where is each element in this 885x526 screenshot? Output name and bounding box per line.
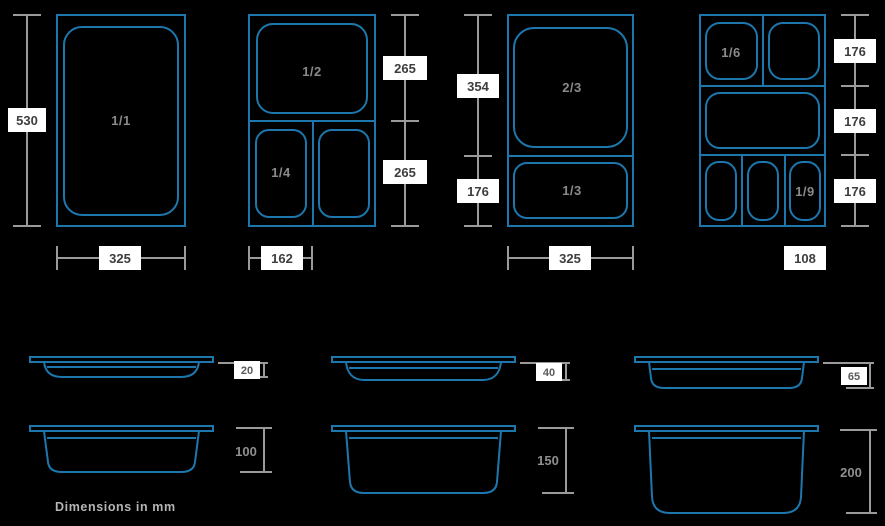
fraction-label-2-3: 2/3: [562, 80, 582, 95]
pan-rim: [635, 357, 818, 362]
pan-body: [346, 362, 501, 380]
pan-1-6-1-9-top-view: 1/6 1/9 176 176 176 108: [700, 15, 876, 270]
dim-label-325b: 325: [559, 251, 581, 266]
pan-body: [649, 362, 804, 388]
pan-profile-depth-100: 100: [30, 426, 272, 472]
dim-label-176-mid: 176: [844, 114, 866, 129]
pan-profile-depth-40: 40: [332, 357, 570, 381]
depth-label-150: 150: [537, 453, 559, 468]
dim-label-530: 530: [16, 113, 38, 128]
pan-profile-depth-65: 65: [635, 357, 874, 388]
pan-rim: [635, 426, 818, 431]
pan-rim: [30, 357, 213, 362]
fraction-label-1-4: 1/4: [271, 165, 291, 180]
fraction-label-1-1: 1/1: [111, 113, 131, 128]
depth-label-20: 20: [241, 365, 253, 377]
dim-label-162: 162: [271, 251, 293, 266]
dim-label-176-bottom: 176: [844, 184, 866, 199]
dim-label-325: 325: [109, 251, 131, 266]
pan-1-9-inner: [748, 162, 778, 220]
dim-label-354: 354: [467, 79, 489, 94]
dim-label-108: 108: [794, 251, 816, 266]
depth-label-40: 40: [543, 367, 555, 379]
dim-label-265-bottom: 265: [394, 165, 416, 180]
pan-profile-depth-200: 200: [635, 426, 877, 513]
pan-rim: [30, 426, 213, 431]
depth-label-65: 65: [848, 371, 860, 383]
pan-rim: [332, 426, 515, 431]
dim-label-176-top: 176: [844, 44, 866, 59]
pan-1-4-inner: [319, 130, 369, 217]
dim-label-265-top: 265: [394, 61, 416, 76]
pan-1-1-top-view: 530 1/1 325: [8, 15, 185, 270]
pan-body: [649, 431, 804, 513]
pan-1-3-horizontal-inner: [706, 93, 819, 148]
gastronorm-diagram: 530 1/1 325 1/2 1/4 265 265 162: [0, 0, 885, 526]
pan-2-3-top-view: 354 176 2/3 1/3 325: [457, 15, 633, 270]
depth-label-100: 100: [235, 444, 257, 459]
pan-profile-depth-150: 150: [332, 426, 574, 493]
fraction-label-1-9: 1/9: [795, 184, 815, 199]
diagram-canvas: 530 1/1 325 1/2 1/4 265 265 162: [0, 0, 885, 526]
pan-profile-depth-20: 20: [30, 357, 268, 379]
pan-rim: [332, 357, 515, 362]
pan-1-6-inner: [769, 23, 819, 79]
fraction-label-1-3: 1/3: [562, 183, 582, 198]
dim-label-176: 176: [467, 184, 489, 199]
footer-note: Dimensions in mm: [55, 500, 176, 514]
fraction-label-1-6: 1/6: [721, 45, 741, 60]
depth-label-200: 200: [840, 465, 862, 480]
pan-body: [44, 362, 199, 377]
pan-1-9-inner: [706, 162, 736, 220]
pan-body: [346, 431, 501, 493]
fraction-label-1-2: 1/2: [302, 64, 322, 79]
pan-1-2-top-view: 1/2 1/4 265 265 162: [249, 15, 427, 270]
